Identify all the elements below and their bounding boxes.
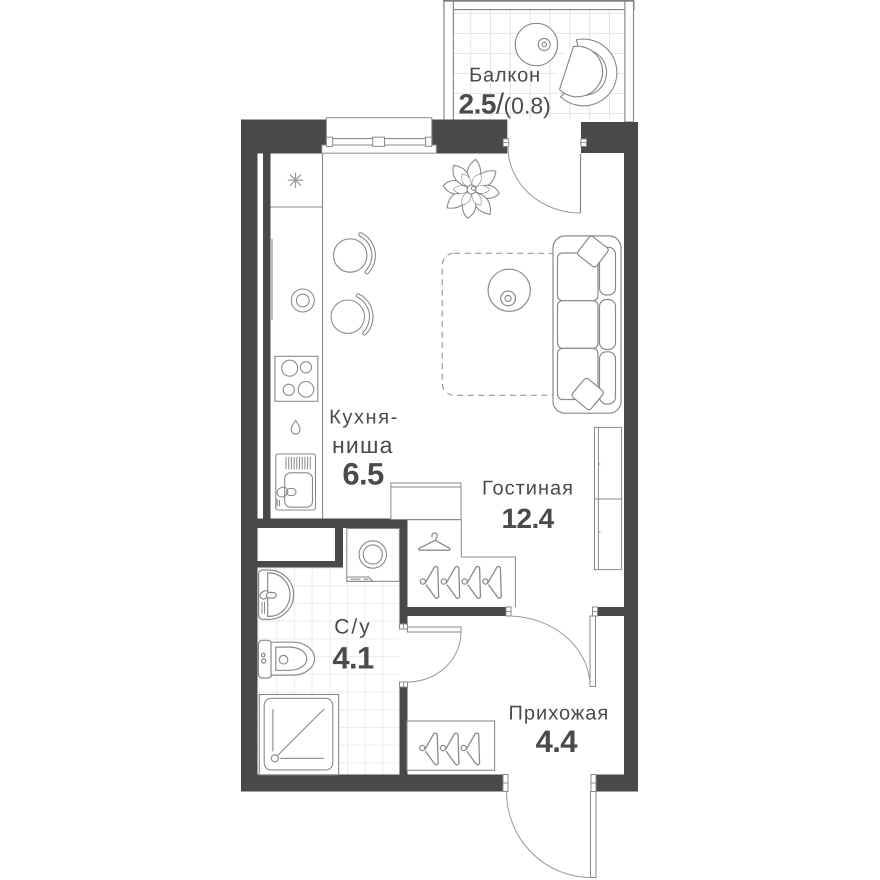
svg-text:6.5: 6.5 [342, 457, 384, 492]
svg-text:Гостиная: Гостиная [482, 478, 574, 500]
svg-text:Кухня-: Кухня- [329, 407, 399, 429]
svg-text:2.5/(0.8): 2.5/(0.8) [459, 89, 551, 121]
svg-text:Балкон: Балкон [469, 65, 541, 87]
svg-text:С/у: С/у [334, 616, 372, 639]
svg-text:4.1: 4.1 [332, 641, 374, 676]
svg-text:ниша: ниша [332, 432, 394, 458]
svg-text:12.4: 12.4 [502, 503, 555, 534]
svg-text:4.4: 4.4 [536, 724, 579, 759]
svg-text:Прихожая: Прихожая [509, 703, 610, 725]
